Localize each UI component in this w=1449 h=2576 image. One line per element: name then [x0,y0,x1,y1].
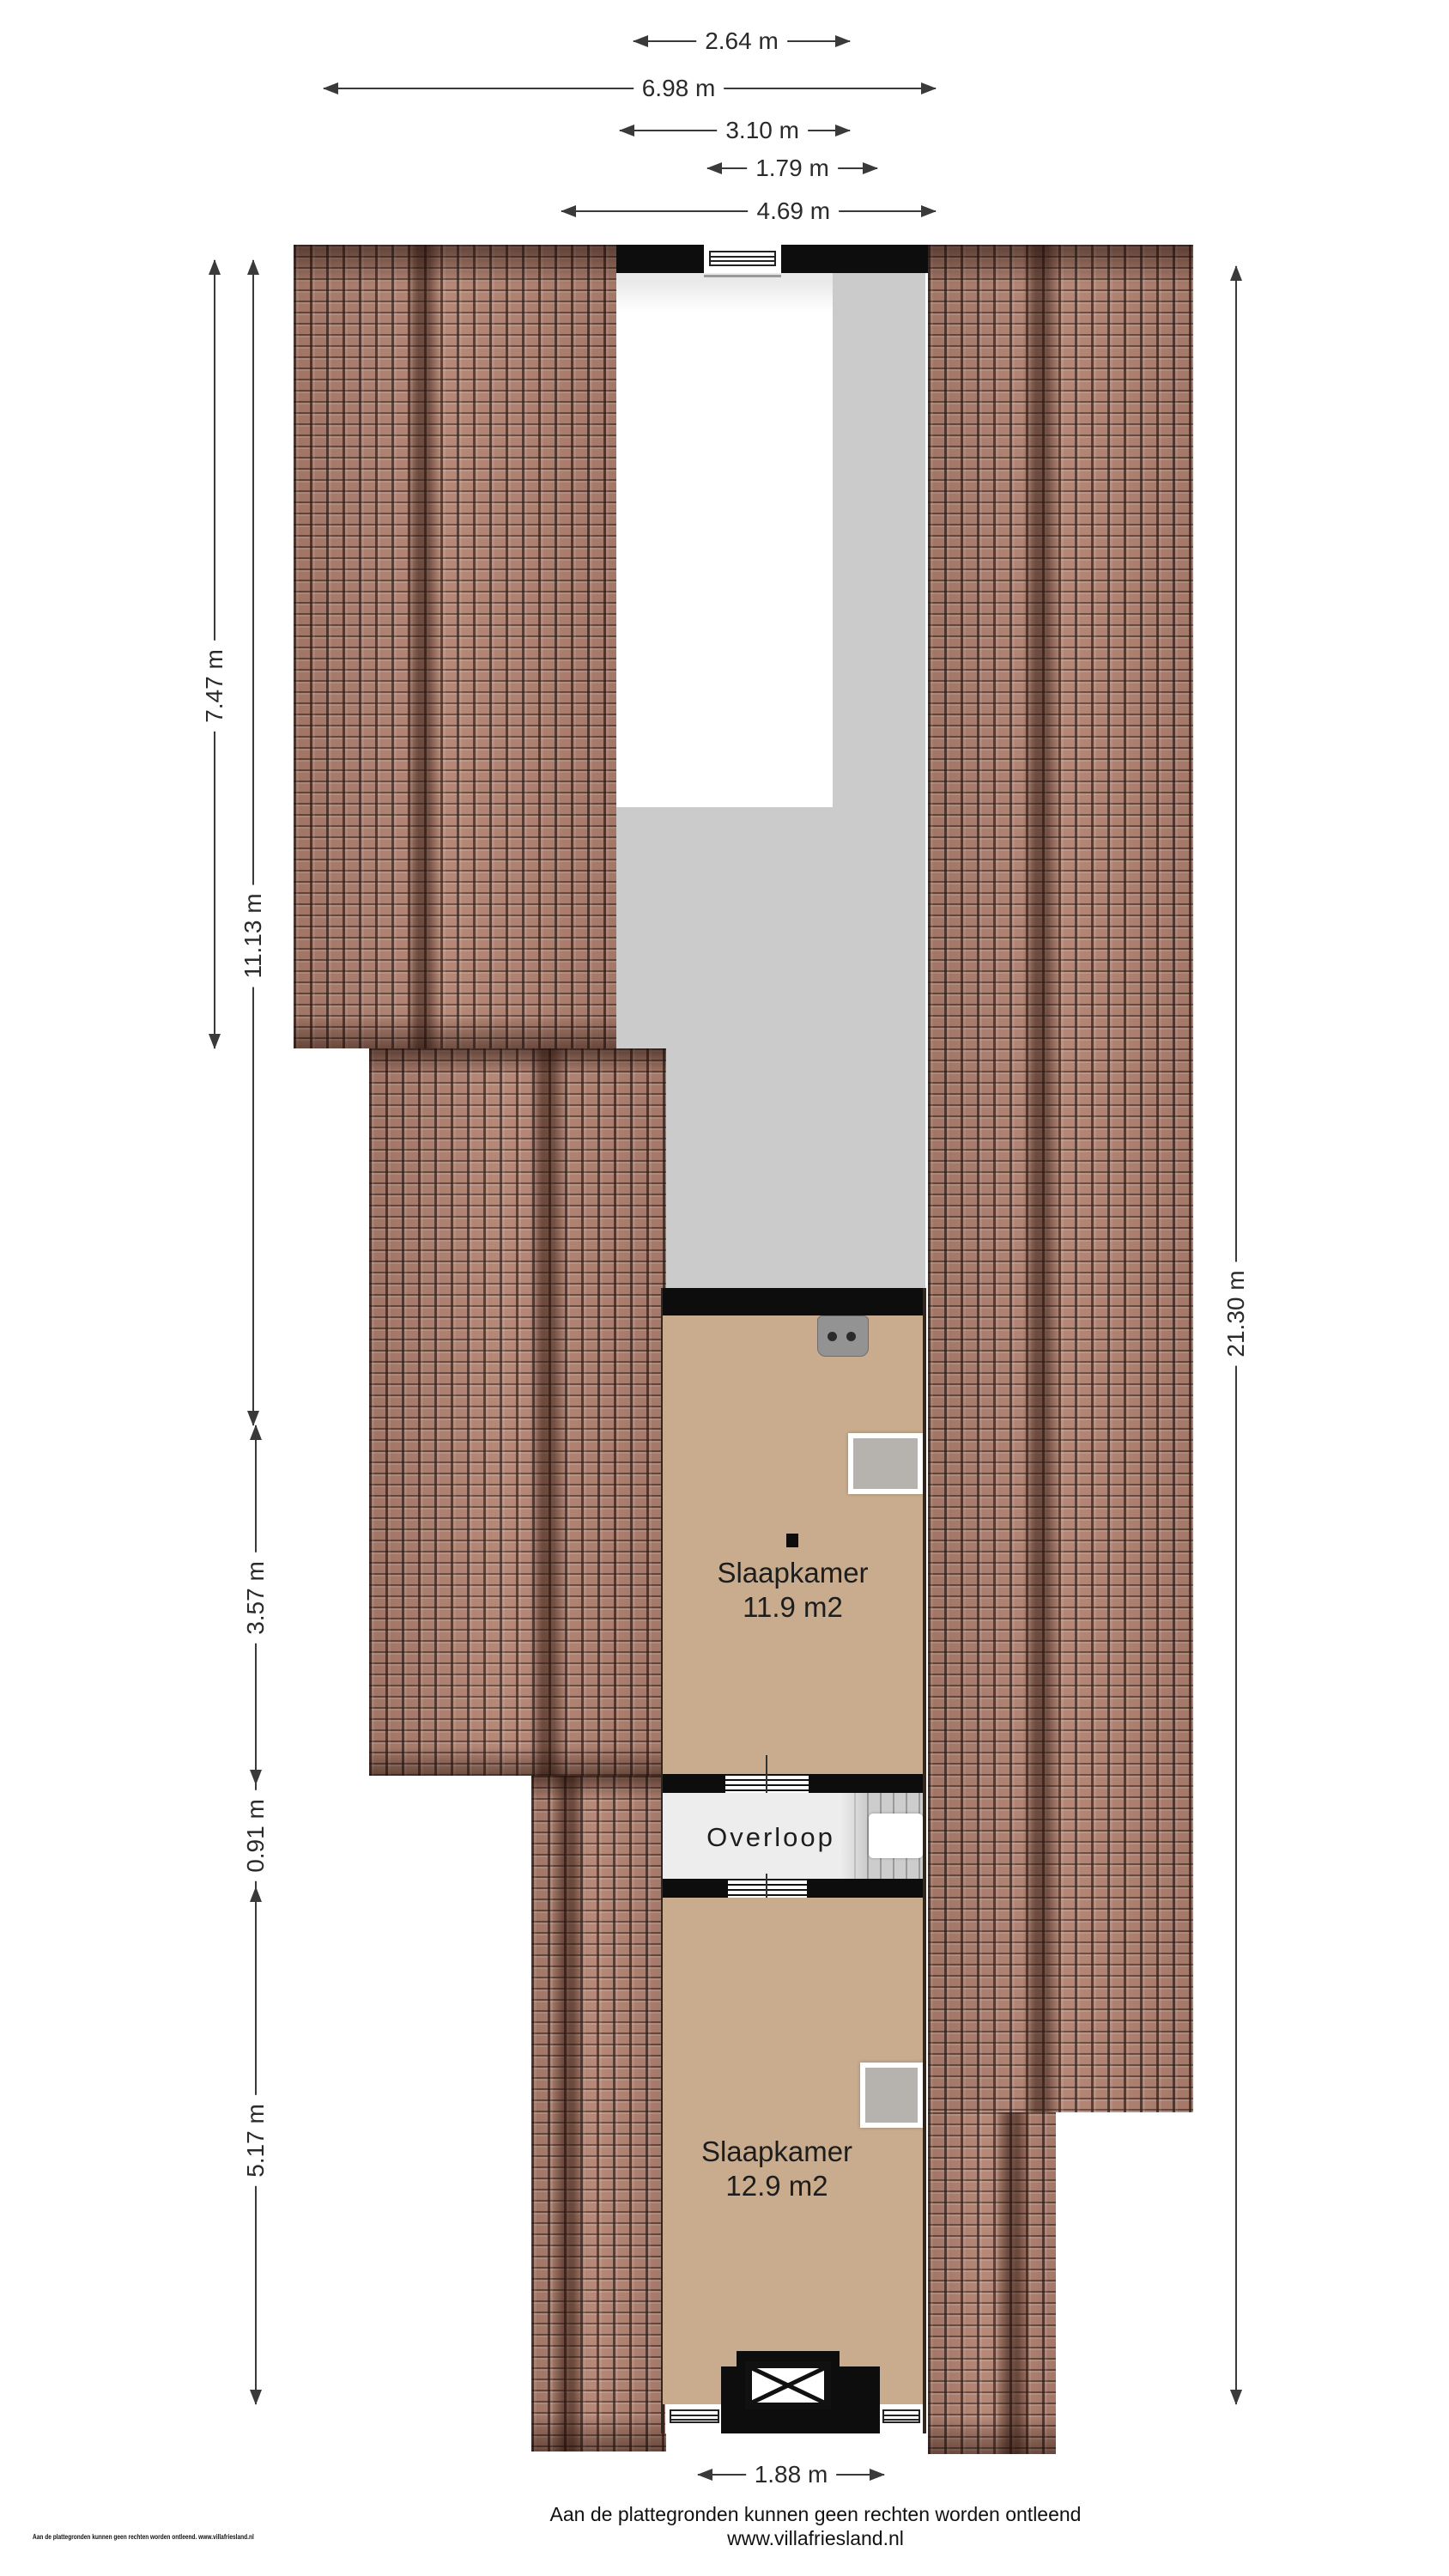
roof-ridge-shadow [369,1048,666,1074]
arrow-up-icon [250,1425,262,1440]
arrow-right-icon [921,82,937,94]
room-area: 11.9 m2 [743,1591,843,1623]
landing-door [728,1879,807,1898]
power-outlet-icon [817,1315,869,1357]
roof-eave-shadow [531,2415,666,2451]
footer-small-print: Aan de plattegronden kunnen geen rechten… [33,2533,254,2541]
arrow-right-icon [835,125,851,137]
open-space-white [616,273,833,807]
arrow-right-icon [863,162,878,174]
dimension-left-357: 3.57 m [255,1425,257,1784]
dimension-left-747: 7.47 m [214,260,215,1048]
roof-eave-shadow [294,1016,616,1048]
bedroom2-label: Slaapkamer 12.9 m2 [663,2135,891,2203]
roof-eave-shadow [928,2418,1056,2454]
dimension-left-091: 0.91 m [255,1784,257,1887]
rooms-right-edge [923,1288,926,2433]
arrow-left-icon [706,162,722,174]
arrow-left-icon [323,82,338,94]
dimension-label: 3.10 m [717,117,808,144]
roof-left-upper [294,245,616,1048]
dimension-label: 1.79 m [747,155,838,182]
arrow-right-icon [870,2469,885,2481]
roof-eave-shadow [369,1747,666,1776]
arrow-left-icon [633,35,648,47]
arrow-left-icon [697,2469,712,2481]
dimension-label: 0.91 m [242,1790,270,1881]
window-icon [670,2409,719,2423]
dimension-left-1113: 11.13 m [252,260,254,1425]
arrow-up-icon [209,259,221,275]
dimension-top-3: 3.10 m [620,130,850,131]
dimension-label: 11.13 m [239,885,267,987]
arrow-up-icon [1230,265,1242,281]
footer-website: www.villafriesland.nl [300,2526,1331,2550]
roof-ridge-shadow [928,245,1193,284]
bedroom1-furniture [848,1433,923,1494]
arrow-right-icon [835,35,851,47]
roof-ridge-shadow [531,1776,666,1798]
roof-fold-line [530,1048,565,1776]
dimension-right-2130: 21.30 m [1235,266,1237,2404]
bedroom2-furniture [860,2063,923,2128]
top-wall-left-segment [616,245,704,273]
bedroom1-top-wall [663,1288,923,1315]
roof-fold-line [552,1776,585,2451]
dimension-bottom-188: 1.88 m [698,2474,884,2476]
arrow-left-icon [561,205,576,217]
roof-right-lower [928,2112,1056,2454]
void-area-main [616,807,925,1048]
arrow-down-icon [209,1034,221,1049]
dimension-label: 21.30 m [1222,1262,1250,1366]
dimension-top-4: 1.79 m [707,167,877,169]
room-name: Slaapkamer [701,2136,852,2167]
bedroom1-post-marker [786,1534,798,1547]
roof-left-middle [369,1048,666,1776]
window-icon [882,2409,920,2423]
roof-left-lower [531,1776,666,2451]
roof-right-upper [928,245,1193,2112]
top-wall-right-segment [781,245,928,273]
floor-plan-canvas: Slaapkamer 11.9 m2 Overloop Slaapkamer 1… [0,0,1449,2576]
window-sill-line [704,275,781,277]
dimension-label: 4.69 m [749,197,840,225]
footer-disclaimer: Aan de plattegronden kunnen geen rechten… [300,2502,1331,2526]
dimension-label: 7.47 m [201,641,228,732]
arrow-up-icon [250,1886,262,1902]
bedroom1-label: Slaapkamer 11.9 m2 [663,1556,923,1625]
arrow-left-icon [619,125,634,137]
roof-shading [928,245,1193,2112]
room-name: Overloop [706,1822,835,1852]
arrow-up-icon [247,259,259,275]
roof-ridge-shadow [294,245,616,284]
window-icon [709,251,776,266]
roof-shading [928,2112,1056,2454]
room-area: 12.9 m2 [725,2170,828,2202]
dimension-top-1: 2.64 m [634,40,850,42]
dimension-label: 6.98 m [634,75,724,102]
skylight-x-icon [745,2361,831,2409]
roof-shading [294,245,616,1048]
arrow-down-icon [1230,2390,1242,2405]
dimension-label: 2.64 m [696,27,787,55]
dimension-top-5: 4.69 m [561,210,936,212]
dimension-top-2: 6.98 m [324,88,936,89]
landing-label: Overloop [663,1820,879,1855]
arrow-down-icon [250,1770,262,1785]
dimension-label: 1.88 m [746,2461,837,2488]
dimension-label: 5.17 m [242,2095,270,2186]
roof-fold-line [996,2112,1030,2454]
roof-shading [369,1048,666,1776]
void-area-column [833,273,925,807]
roof-fold-line [407,245,440,1048]
dimension-left-517: 5.17 m [255,1887,257,2404]
dimension-label: 3.57 m [242,1552,270,1643]
room-name: Slaapkamer [717,1557,868,1589]
void-area-lower [666,1048,925,1288]
roof-fold-line [1023,245,1059,2112]
arrow-down-icon [250,2390,262,2405]
arrow-right-icon [921,205,937,217]
